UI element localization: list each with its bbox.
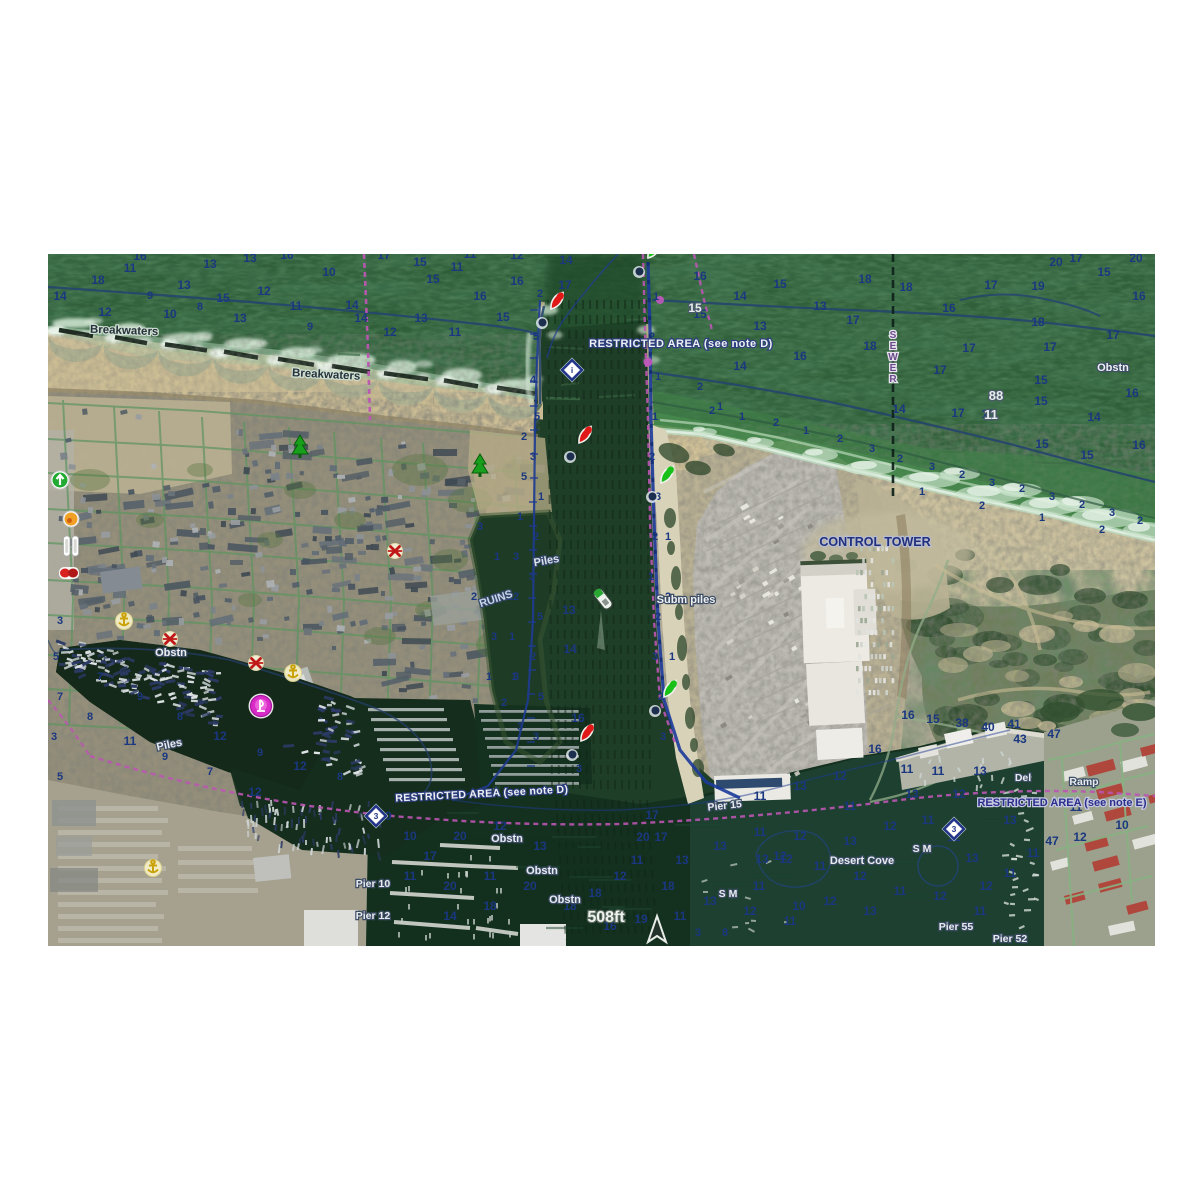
svg-text:Obstn: Obstn [549, 894, 581, 906]
svg-text:S M: S M [719, 888, 738, 900]
svg-text:15: 15 [413, 255, 427, 269]
svg-text:3: 3 [869, 443, 875, 455]
svg-text:17: 17 [962, 341, 976, 355]
svg-text:2: 2 [897, 453, 903, 465]
svg-text:3: 3 [491, 631, 497, 643]
svg-text:8: 8 [197, 301, 203, 313]
svg-text:2: 2 [471, 591, 477, 603]
svg-text:20: 20 [523, 879, 537, 893]
svg-text:13: 13 [414, 311, 428, 325]
svg-text:18: 18 [899, 280, 913, 294]
svg-text:2: 2 [979, 500, 985, 512]
svg-text:16: 16 [901, 708, 915, 722]
svg-text:14: 14 [563, 642, 577, 656]
svg-text:20: 20 [443, 879, 457, 893]
svg-text:16: 16 [1125, 386, 1139, 400]
svg-text:13: 13 [533, 839, 547, 853]
svg-text:12: 12 [613, 869, 627, 883]
svg-text:1: 1 [739, 411, 745, 423]
svg-text:1: 1 [919, 486, 925, 498]
svg-text:3: 3 [695, 927, 701, 939]
svg-text:2: 2 [1099, 524, 1105, 536]
svg-text:17: 17 [1043, 340, 1057, 354]
svg-text:S M: S M [913, 843, 932, 855]
svg-text:9: 9 [162, 751, 168, 763]
svg-text:W: W [888, 352, 898, 363]
svg-text:16: 16 [1132, 289, 1146, 303]
svg-text:3: 3 [929, 461, 935, 473]
svg-text:2: 2 [1137, 515, 1143, 527]
svg-text:Ramp: Ramp [1069, 776, 1098, 788]
svg-text:11: 11 [290, 299, 303, 313]
svg-text:11: 11 [631, 853, 644, 867]
svg-text:13: 13 [755, 852, 769, 866]
svg-text:14: 14 [892, 402, 906, 416]
svg-text:2: 2 [530, 651, 536, 663]
svg-text:11: 11 [974, 904, 987, 918]
svg-text:15: 15 [1097, 265, 1111, 279]
svg-text:17: 17 [645, 808, 659, 822]
svg-text:11: 11 [784, 914, 797, 928]
svg-text:5: 5 [521, 471, 527, 483]
svg-text:41: 41 [1007, 717, 1021, 731]
svg-text:16: 16 [868, 742, 882, 756]
svg-text:16: 16 [510, 274, 524, 288]
svg-text:15: 15 [216, 291, 230, 305]
svg-text:13: 13 [675, 853, 689, 867]
svg-text:14: 14 [345, 298, 359, 312]
svg-text:R: R [889, 374, 897, 385]
svg-text:Obstn: Obstn [155, 647, 187, 659]
svg-text:17: 17 [984, 278, 998, 292]
svg-text:2: 2 [709, 405, 715, 417]
svg-text:12: 12 [883, 819, 897, 833]
svg-text:7: 7 [97, 671, 103, 683]
svg-text:3: 3 [1109, 507, 1115, 519]
svg-text:13: 13 [177, 278, 191, 292]
svg-text:18: 18 [1031, 315, 1045, 329]
svg-text:13: 13 [753, 319, 767, 333]
svg-text:14: 14 [1087, 410, 1101, 424]
svg-text:18: 18 [483, 899, 497, 913]
svg-text:12: 12 [833, 769, 847, 783]
svg-text:18: 18 [661, 879, 675, 893]
svg-text:16: 16 [793, 349, 807, 363]
svg-text:15: 15 [1080, 448, 1094, 462]
svg-text:1: 1 [665, 531, 671, 543]
svg-text:11: 11 [484, 869, 497, 883]
svg-text:14: 14 [443, 909, 457, 923]
svg-text:5: 5 [538, 691, 544, 703]
svg-text:1: 1 [669, 651, 675, 663]
svg-text:14: 14 [733, 289, 747, 303]
svg-text:14: 14 [559, 253, 573, 267]
svg-text:8: 8 [337, 771, 343, 783]
svg-text:E: E [890, 341, 897, 352]
svg-text:3: 3 [529, 571, 535, 583]
svg-text:11: 11 [674, 909, 687, 923]
svg-text:14: 14 [733, 359, 747, 373]
svg-text:13: 13 [905, 787, 919, 801]
svg-text:508ft: 508ft [587, 909, 625, 926]
svg-text:2: 2 [649, 451, 655, 463]
svg-text:Pier 52: Pier 52 [993, 933, 1028, 945]
svg-text:17: 17 [951, 406, 965, 420]
svg-text:17: 17 [1106, 328, 1120, 342]
svg-text:19: 19 [634, 912, 648, 926]
svg-text:3: 3 [513, 551, 519, 563]
svg-text:8: 8 [87, 711, 93, 723]
svg-text:1: 1 [511, 671, 517, 683]
svg-text:11: 11 [754, 825, 767, 839]
svg-text:16: 16 [693, 269, 707, 283]
svg-text:3: 3 [952, 824, 957, 834]
svg-text:11: 11 [124, 261, 137, 275]
svg-text:3: 3 [652, 651, 658, 663]
svg-text:10: 10 [163, 307, 177, 321]
svg-text:16: 16 [571, 711, 585, 725]
svg-text:1: 1 [517, 511, 523, 523]
svg-text:9: 9 [137, 691, 143, 703]
svg-text:10: 10 [322, 265, 336, 279]
svg-text:17: 17 [933, 363, 947, 377]
svg-text:5: 5 [53, 651, 59, 663]
svg-text:2: 2 [652, 531, 658, 543]
svg-text:Obstn: Obstn [526, 865, 558, 877]
svg-text:1: 1 [655, 371, 661, 383]
svg-text:11: 11 [814, 859, 827, 873]
svg-text:47: 47 [1047, 727, 1061, 741]
svg-text:13: 13 [203, 257, 217, 271]
svg-text:15: 15 [688, 301, 702, 315]
svg-text:2: 2 [537, 288, 543, 300]
svg-text:15: 15 [496, 310, 510, 324]
svg-text:8: 8 [177, 711, 183, 723]
svg-text:5: 5 [537, 611, 543, 623]
svg-text:13: 13 [233, 311, 247, 325]
svg-text:2: 2 [1079, 499, 1085, 511]
svg-text:3: 3 [517, 721, 523, 733]
svg-text:15: 15 [1034, 373, 1048, 387]
svg-text:11: 11 [753, 879, 766, 893]
svg-text:10: 10 [403, 829, 417, 843]
svg-text:12: 12 [933, 889, 947, 903]
svg-text:11: 11 [124, 734, 137, 748]
svg-text:7: 7 [57, 691, 63, 703]
svg-text:5: 5 [57, 771, 63, 783]
svg-text:17: 17 [654, 830, 668, 844]
svg-text:20: 20 [1049, 255, 1063, 269]
svg-text:11: 11 [894, 884, 907, 898]
svg-text:12: 12 [853, 869, 867, 883]
svg-text:13: 13 [713, 839, 727, 853]
svg-text:11: 11 [984, 407, 998, 422]
svg-text:15: 15 [1035, 437, 1049, 451]
svg-text:15: 15 [426, 272, 440, 286]
svg-text:2: 2 [697, 381, 703, 393]
svg-text:12: 12 [773, 849, 787, 863]
svg-text:14: 14 [354, 311, 368, 325]
svg-text:2: 2 [1019, 483, 1025, 495]
svg-text:2: 2 [501, 697, 507, 709]
svg-text:13: 13 [863, 904, 877, 918]
svg-text:1: 1 [509, 631, 515, 643]
svg-text:12: 12 [383, 325, 397, 339]
svg-text:S: S [890, 330, 897, 341]
svg-text:17: 17 [846, 313, 860, 327]
svg-text:CONTROL TOWER: CONTROL TOWER [819, 535, 930, 549]
svg-text:12: 12 [1073, 830, 1087, 844]
svg-text:2: 2 [655, 611, 661, 623]
svg-text:3: 3 [660, 731, 666, 743]
svg-text:17: 17 [423, 849, 437, 863]
svg-text:18: 18 [588, 886, 602, 900]
svg-text:15: 15 [773, 277, 787, 291]
svg-text:9: 9 [307, 321, 313, 333]
svg-text:18: 18 [858, 272, 872, 286]
svg-text:4: 4 [530, 374, 537, 386]
svg-text:RESTRICTED AREA (see note D): RESTRICTED AREA (see note D) [589, 338, 773, 350]
svg-text:9: 9 [147, 290, 153, 302]
svg-text:2: 2 [513, 591, 519, 603]
svg-text:1: 1 [648, 571, 654, 583]
svg-text:2: 2 [658, 691, 664, 703]
svg-text:12: 12 [952, 787, 966, 801]
svg-text:3: 3 [51, 731, 57, 743]
svg-text:11: 11 [404, 869, 417, 883]
svg-text:1: 1 [803, 425, 809, 437]
svg-text:13: 13 [973, 764, 987, 778]
svg-text:3: 3 [374, 811, 379, 821]
svg-text:11: 11 [1027, 846, 1040, 860]
svg-text:Desert Cove: Desert Cove [830, 855, 894, 867]
svg-text:13: 13 [813, 299, 827, 313]
svg-text:1: 1 [538, 491, 544, 503]
svg-text:2: 2 [533, 531, 539, 543]
svg-text:88: 88 [989, 388, 1003, 403]
svg-text:16: 16 [942, 301, 956, 315]
svg-text:11: 11 [901, 762, 914, 776]
svg-text:Obstn: Obstn [491, 833, 523, 845]
svg-text:13: 13 [965, 851, 979, 865]
svg-text:15: 15 [1034, 394, 1048, 408]
svg-text:2: 2 [959, 469, 965, 481]
svg-text:5: 5 [533, 331, 539, 343]
svg-text:16: 16 [473, 289, 487, 303]
svg-text:12: 12 [293, 759, 307, 773]
svg-text:2: 2 [773, 417, 779, 429]
svg-text:7: 7 [207, 766, 213, 778]
svg-text:2: 2 [521, 431, 527, 443]
svg-text:2: 2 [837, 433, 843, 445]
svg-text:1: 1 [486, 671, 492, 683]
svg-text:43: 43 [1013, 732, 1027, 746]
svg-text:13: 13 [843, 834, 857, 848]
svg-text:3: 3 [57, 615, 63, 627]
svg-text:13: 13 [562, 603, 576, 617]
svg-text:1: 1 [717, 401, 723, 413]
svg-text:19: 19 [1031, 279, 1045, 293]
svg-text:1: 1 [1039, 512, 1045, 524]
svg-text:RESTRICTED AREA (see note E): RESTRICTED AREA (see note E) [977, 797, 1146, 809]
svg-text:E: E [890, 363, 897, 374]
svg-text:12: 12 [248, 785, 262, 799]
svg-text:11: 11 [449, 325, 462, 339]
svg-text:5: 5 [534, 411, 540, 423]
svg-text:13: 13 [1003, 813, 1017, 827]
svg-text:12: 12 [98, 305, 112, 319]
svg-text:Breakwaters: Breakwaters [90, 324, 159, 338]
svg-text:10: 10 [792, 899, 806, 913]
svg-text:11: 11 [451, 260, 464, 274]
svg-text:1: 1 [652, 411, 658, 423]
svg-text:12: 12 [793, 829, 807, 843]
svg-text:3: 3 [477, 521, 483, 533]
svg-text:47: 47 [1045, 834, 1059, 848]
svg-text:3: 3 [530, 451, 536, 463]
svg-text:12: 12 [979, 879, 993, 893]
svg-text:Del: Del [1015, 772, 1031, 784]
svg-text:11: 11 [754, 789, 767, 803]
svg-text:8: 8 [722, 927, 728, 939]
svg-text:11: 11 [844, 799, 857, 813]
svg-text:12: 12 [213, 729, 227, 743]
svg-text:13: 13 [793, 779, 807, 793]
svg-text:Subm piles: Subm piles [657, 594, 716, 606]
svg-text:Pier 55: Pier 55 [939, 921, 974, 933]
svg-text:20: 20 [636, 830, 650, 844]
svg-text:13: 13 [703, 894, 717, 908]
svg-text:Pier 10: Pier 10 [356, 878, 391, 890]
svg-text:12: 12 [823, 894, 837, 908]
svg-text:14: 14 [53, 289, 67, 303]
svg-text:11: 11 [922, 813, 935, 827]
svg-text:3: 3 [989, 477, 995, 489]
svg-text:10: 10 [1115, 818, 1129, 832]
svg-text:38: 38 [955, 716, 969, 730]
svg-text:9: 9 [257, 747, 263, 759]
svg-text:i: i [571, 365, 573, 375]
svg-text:16: 16 [1132, 438, 1146, 452]
svg-text:11: 11 [1004, 866, 1017, 880]
svg-text:12: 12 [493, 819, 507, 833]
svg-text:Obstn: Obstn [1097, 362, 1129, 374]
svg-text:3: 3 [1049, 491, 1055, 503]
svg-text:Pier 12: Pier 12 [356, 910, 391, 922]
svg-text:11: 11 [932, 764, 945, 778]
svg-text:3: 3 [576, 763, 582, 775]
svg-text:18: 18 [863, 339, 877, 353]
svg-text:18: 18 [91, 273, 105, 287]
svg-text:20: 20 [453, 829, 467, 843]
svg-text:12: 12 [257, 284, 271, 298]
svg-text:12: 12 [743, 904, 757, 918]
svg-text:3: 3 [533, 731, 539, 743]
svg-text:17: 17 [558, 278, 572, 292]
svg-text:1: 1 [494, 551, 500, 563]
svg-text:15: 15 [926, 712, 940, 726]
svg-text:1: 1 [653, 291, 659, 303]
svg-text:40: 40 [981, 720, 995, 734]
